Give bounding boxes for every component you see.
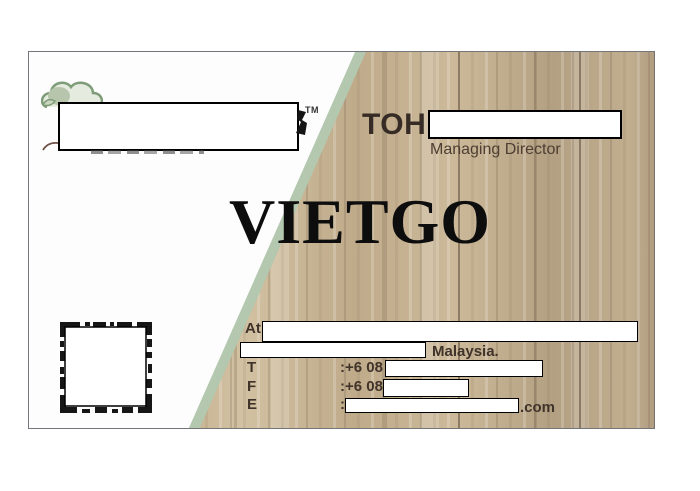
redaction-box-company-name — [58, 102, 299, 151]
redaction-box-person-name — [428, 110, 622, 139]
email-domain-suffix: .com — [520, 399, 555, 416]
wood-plank-line — [579, 52, 581, 428]
phone-prefix: :+6 08 — [340, 359, 383, 376]
qr-code — [60, 322, 152, 413]
wood-edge-shadow — [629, 52, 655, 428]
vietgo-watermark: VIETGO — [229, 190, 491, 254]
address-label: At — [245, 320, 261, 337]
redaction-box-address-line1 — [262, 321, 638, 342]
business-card: TM TOH Managing Director VIETGO At Malay… — [28, 51, 655, 429]
phone-label: T — [247, 359, 256, 376]
redaction-box-qr — [65, 327, 146, 406]
fax-label: F — [247, 378, 256, 395]
country-text: Malaysia. — [432, 343, 499, 360]
fax-prefix: :+6 08 — [340, 378, 383, 395]
person-job-title: Managing Director — [430, 141, 561, 159]
redaction-box-phone — [385, 360, 543, 377]
partially-hidden-text-sliver — [91, 150, 204, 154]
email-label: E — [247, 396, 257, 413]
trademark-symbol: TM — [305, 105, 319, 115]
redaction-box-fax — [383, 379, 469, 397]
redaction-box-email — [345, 398, 519, 413]
person-surname: TOH — [362, 108, 426, 142]
redaction-box-address-line2 — [240, 342, 426, 358]
